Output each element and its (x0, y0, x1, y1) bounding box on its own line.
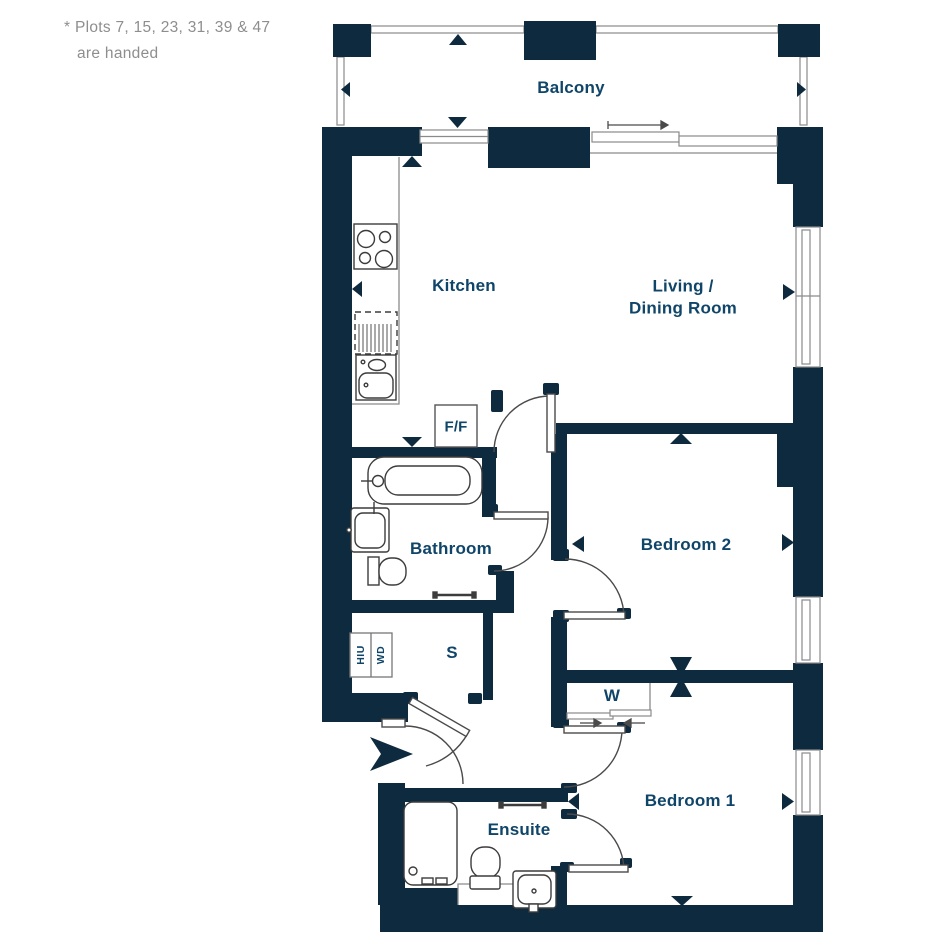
bedroom1-marker-right (782, 793, 794, 810)
sink (356, 355, 396, 400)
dishwasher (355, 312, 397, 354)
bedroom2-marker-left (572, 536, 584, 552)
bathroom-toilet (368, 557, 406, 585)
bedroom1-label: Bedroom 1 (645, 791, 736, 811)
shower (404, 802, 457, 885)
living-label-line2: Dining Room (629, 297, 737, 319)
fridge-freezer-label: F/F (444, 419, 467, 436)
bedroom2-marker-up (670, 433, 692, 444)
ensuite-toilet (470, 847, 500, 889)
bedroom2-marker-right (782, 534, 794, 551)
balcony-marker-up (449, 34, 467, 45)
bedroom1-window (796, 750, 820, 815)
kitchen-marker-up (402, 156, 422, 167)
living-marker-right (783, 284, 795, 300)
balcony-pillar (524, 21, 596, 60)
kitchen-door (494, 394, 555, 452)
wd-label: WD (375, 646, 387, 665)
kitchen-marker-down (402, 437, 422, 447)
living-window (796, 227, 820, 367)
bathroom-label: Bathroom (410, 539, 492, 559)
sliding-door-arrow (608, 121, 668, 129)
store-label: S (446, 643, 458, 663)
wardrobe-label: W (604, 686, 620, 706)
bedroom2-label: Bedroom 2 (641, 535, 732, 555)
living-dining-label: Living / Dining Room (629, 275, 737, 319)
balcony-pillar (778, 24, 820, 57)
handed-note: * Plots 7, 15, 23, 31, 39 & 47 are hande… (64, 15, 270, 67)
store-door (409, 697, 470, 766)
hiu-label: HIU (355, 645, 367, 665)
ensuite-towel-rail (499, 802, 546, 808)
kitchen-marker-left (352, 281, 362, 297)
ensuite-door (567, 814, 628, 872)
ensuite-basin (513, 871, 556, 912)
bathroom-fixtures (347, 457, 482, 598)
balcony-pillar (333, 24, 371, 57)
wardrobe-sliding-doors (567, 710, 651, 719)
living-label-line1: Living / (629, 275, 737, 297)
bedroom1-marker-down (671, 896, 693, 906)
ensuite-label: Ensuite (488, 820, 551, 840)
balcony-marker-down (448, 117, 467, 128)
living-sliding-door (592, 132, 777, 146)
handed-note-line1: * Plots 7, 15, 23, 31, 39 & 47 (64, 15, 270, 41)
kitchen-window (420, 130, 488, 143)
kitchen-label: Kitchen (432, 276, 496, 296)
entrance-arrow (370, 737, 413, 771)
bath (361, 457, 482, 504)
bathroom-basin (347, 502, 389, 552)
balcony-label: Balcony (537, 78, 605, 98)
bedroom1-door (564, 726, 625, 787)
handed-note-line2: are handed (64, 41, 270, 67)
bedroom1-marker-left (568, 793, 579, 810)
bathroom-towel-rail (433, 592, 476, 598)
floorplan-page: * Plots 7, 15, 23, 31, 39 & 47 are hande… (0, 0, 945, 945)
hob (354, 224, 397, 269)
kitchen-fixtures (354, 224, 477, 447)
bathroom-door (494, 512, 548, 571)
floorplan-drawing (0, 0, 945, 945)
bedroom2-window (796, 597, 820, 663)
bedroom2-door (564, 559, 625, 619)
